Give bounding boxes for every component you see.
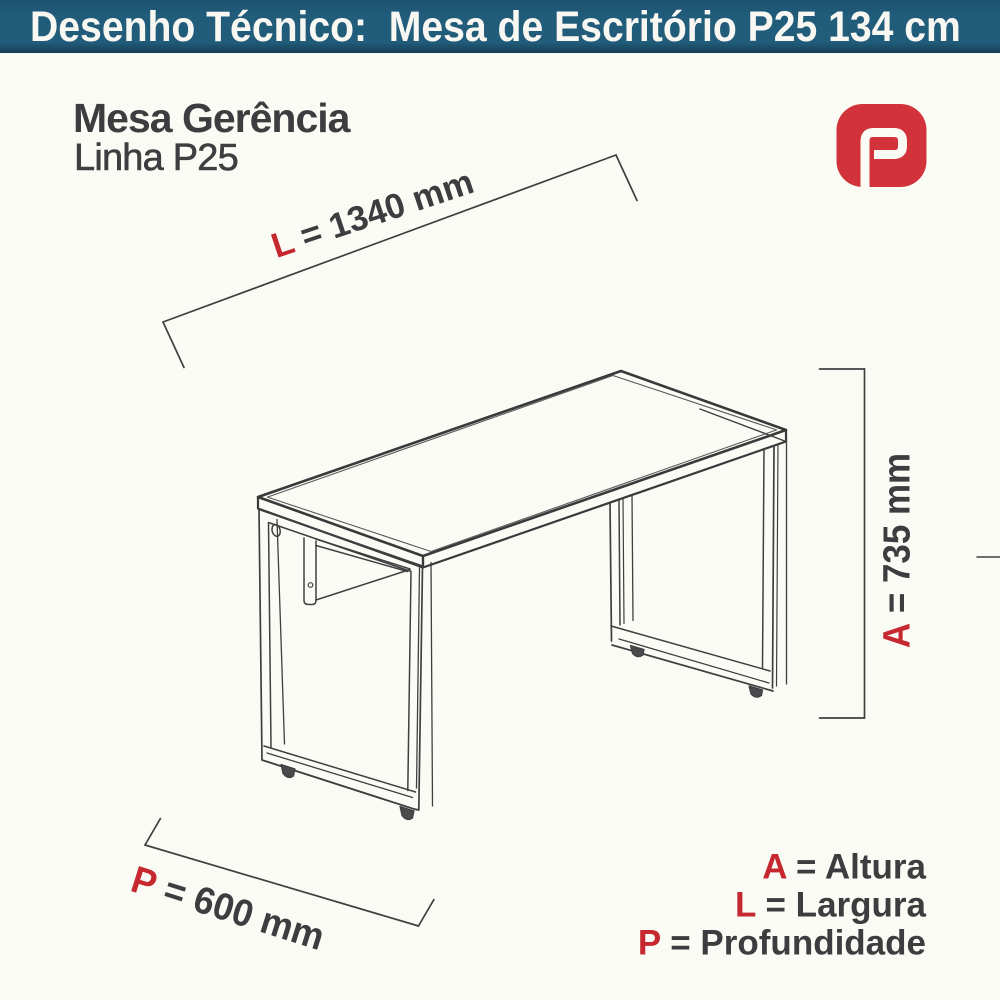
svg-text:P = Profundidade: P = Profundidade (638, 924, 926, 963)
svg-text:L = 1340 mm: L = 1340 mm (266, 162, 478, 266)
svg-text:L = Largura: L = Largura (735, 886, 926, 925)
svg-text:P = 600 mm: P = 600 mm (126, 857, 329, 958)
svg-text:A = Altura: A = Altura (762, 848, 926, 887)
svg-text:A = 735 mm: A = 735 mm (875, 453, 918, 648)
